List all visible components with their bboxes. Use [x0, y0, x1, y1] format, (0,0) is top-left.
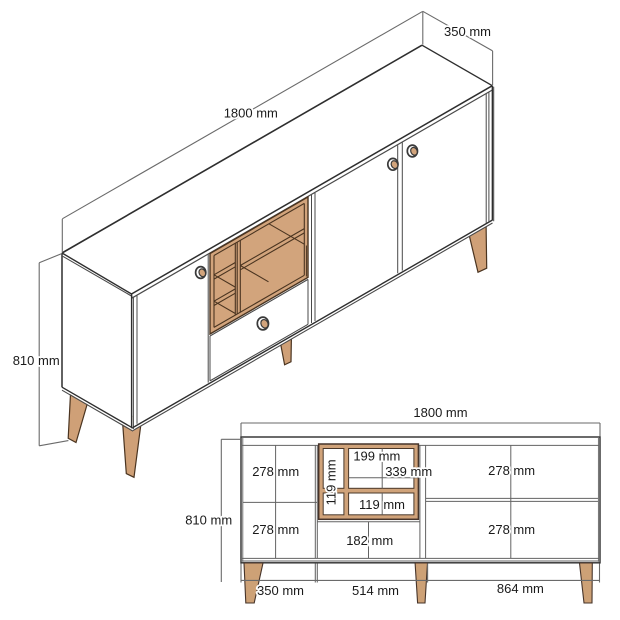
- svg-text:199 mm: 199 mm: [353, 448, 400, 463]
- svg-text:810 mm: 810 mm: [185, 513, 232, 528]
- svg-text:864 mm: 864 mm: [497, 581, 544, 596]
- svg-text:278 mm: 278 mm: [488, 463, 535, 478]
- svg-text:119 mm: 119 mm: [359, 497, 405, 512]
- svg-text:278 mm: 278 mm: [252, 464, 299, 479]
- svg-text:339 mm: 339 mm: [385, 464, 432, 479]
- svg-text:182 mm: 182 mm: [346, 533, 393, 548]
- svg-text:350 mm: 350 mm: [444, 24, 491, 39]
- svg-text:1800 mm: 1800 mm: [224, 106, 278, 121]
- svg-text:278 mm: 278 mm: [488, 522, 535, 537]
- svg-text:810 mm: 810 mm: [13, 353, 60, 368]
- svg-text:514 mm: 514 mm: [352, 583, 399, 598]
- svg-text:278 mm: 278 mm: [252, 522, 299, 537]
- svg-text:350 mm: 350 mm: [257, 583, 304, 598]
- svg-text:119 mm: 119 mm: [324, 459, 339, 505]
- svg-text:1800 mm: 1800 mm: [413, 405, 467, 420]
